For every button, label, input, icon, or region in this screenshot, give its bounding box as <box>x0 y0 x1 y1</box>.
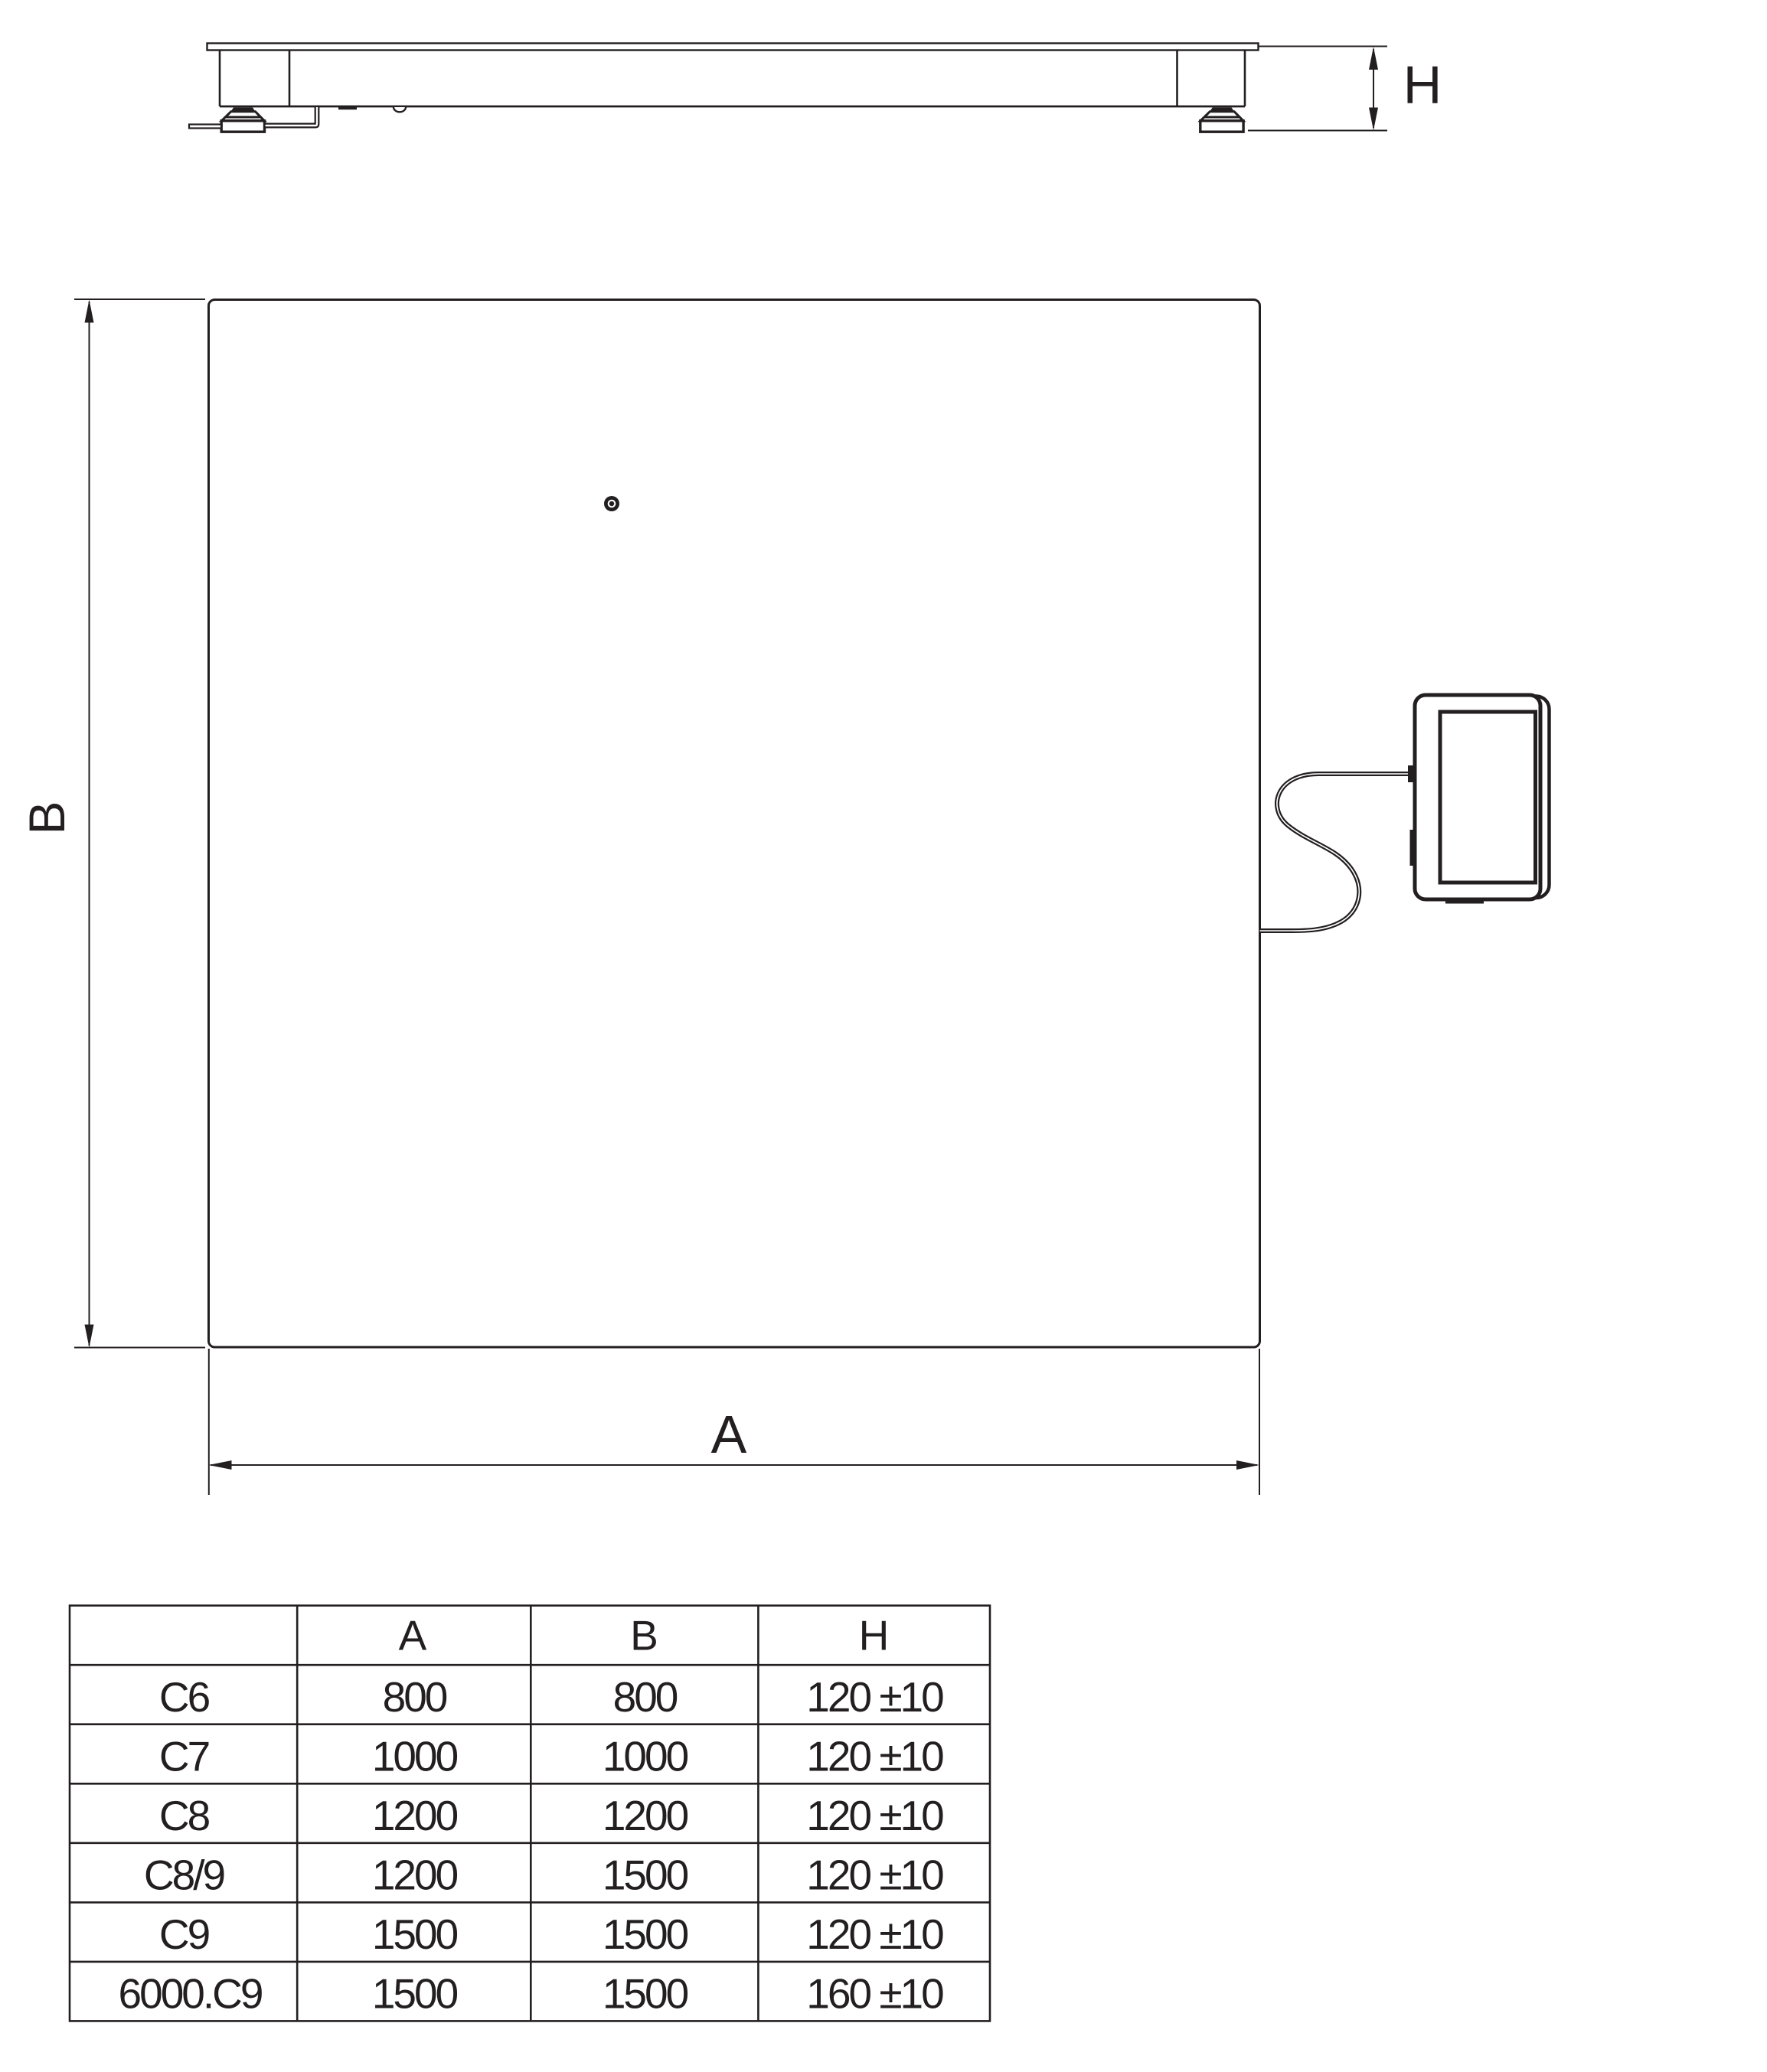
svg-text:C8: C8 <box>159 1792 210 1839</box>
svg-text:800: 800 <box>383 1673 447 1721</box>
svg-text:A: A <box>711 1405 747 1464</box>
svg-text:800: 800 <box>613 1673 678 1721</box>
svg-text:1500: 1500 <box>603 1852 688 1899</box>
svg-text:1200: 1200 <box>372 1792 458 1839</box>
svg-text:120 ±10: 120 ±10 <box>806 1792 943 1839</box>
svg-text:6000.C9: 6000.C9 <box>119 1970 262 2018</box>
svg-text:B: B <box>18 801 75 834</box>
svg-text:H: H <box>859 1612 890 1659</box>
svg-text:C6: C6 <box>159 1673 210 1721</box>
svg-text:1500: 1500 <box>372 1910 458 1958</box>
svg-text:1200: 1200 <box>603 1792 688 1839</box>
svg-text:1500: 1500 <box>603 1970 688 2018</box>
svg-text:1000: 1000 <box>603 1733 688 1780</box>
svg-text:C9: C9 <box>159 1910 209 1958</box>
svg-text:1200: 1200 <box>372 1852 458 1899</box>
svg-text:C7: C7 <box>159 1733 209 1780</box>
svg-text:120 ±10: 120 ±10 <box>806 1910 943 1958</box>
svg-text:120 ±10: 120 ±10 <box>806 1852 943 1899</box>
svg-text:B: B <box>630 1612 658 1659</box>
svg-text:1500: 1500 <box>603 1910 688 1958</box>
svg-text:C8/9: C8/9 <box>144 1852 224 1899</box>
svg-text:H: H <box>1403 55 1442 115</box>
svg-text:120 ±10: 120 ±10 <box>806 1673 943 1721</box>
svg-text:160 ±10: 160 ±10 <box>806 1970 943 2018</box>
svg-text:1000: 1000 <box>372 1733 458 1780</box>
svg-text:1500: 1500 <box>372 1970 458 2018</box>
svg-text:A: A <box>399 1612 427 1659</box>
svg-text:120 ±10: 120 ±10 <box>806 1733 943 1780</box>
